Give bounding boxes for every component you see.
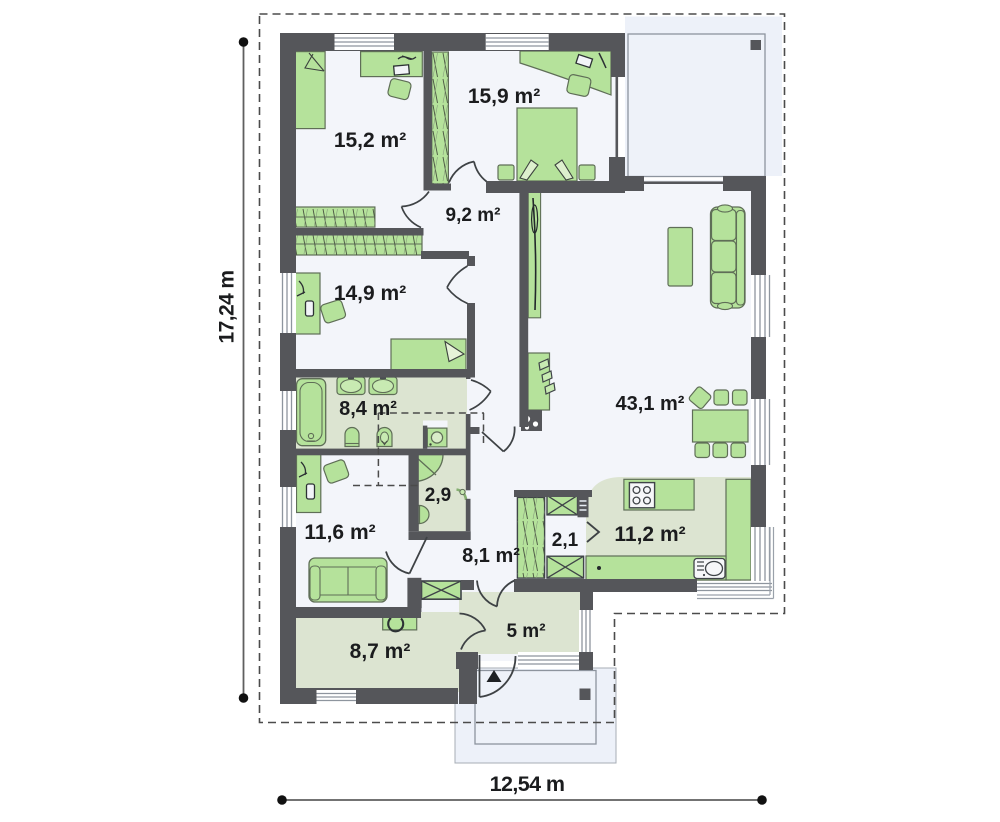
svg-text:15,2 m²: 15,2 m² bbox=[334, 129, 406, 152]
svg-text:8,7 m²: 8,7 m² bbox=[350, 640, 411, 663]
svg-text:2,1: 2,1 bbox=[552, 530, 579, 551]
svg-text:43,1 m²: 43,1 m² bbox=[616, 393, 685, 415]
svg-text:2,9: 2,9 bbox=[425, 485, 451, 506]
svg-text:17,24 m: 17,24 m bbox=[216, 271, 239, 344]
svg-text:8,4 m²: 8,4 m² bbox=[339, 398, 397, 420]
svg-text:14,9 m²: 14,9 m² bbox=[334, 282, 406, 305]
svg-text:8,1 m²: 8,1 m² bbox=[462, 545, 520, 567]
svg-text:9,2 m²: 9,2 m² bbox=[446, 205, 501, 226]
svg-text:11,2 m²: 11,2 m² bbox=[614, 523, 685, 546]
svg-text:15,9 m²: 15,9 m² bbox=[468, 85, 540, 108]
svg-text:12,54 m: 12,54 m bbox=[490, 772, 565, 796]
svg-text:5 m²: 5 m² bbox=[506, 621, 545, 642]
svg-text:11,6 m²: 11,6 m² bbox=[304, 521, 375, 544]
